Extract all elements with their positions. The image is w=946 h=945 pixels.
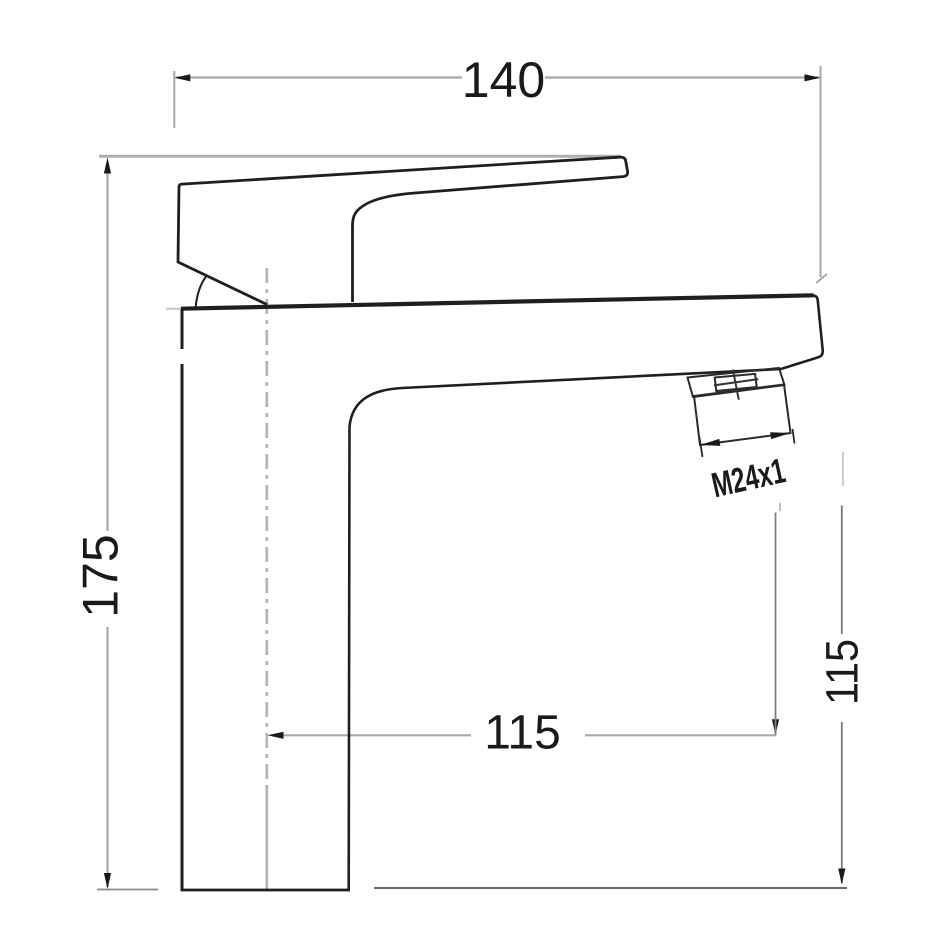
svg-text:M24x1: M24x1 bbox=[708, 451, 789, 505]
svg-text:115: 115 bbox=[484, 707, 561, 760]
svg-text:115: 115 bbox=[817, 639, 868, 705]
svg-text:175: 175 bbox=[73, 534, 129, 617]
svg-text:140: 140 bbox=[462, 52, 545, 108]
